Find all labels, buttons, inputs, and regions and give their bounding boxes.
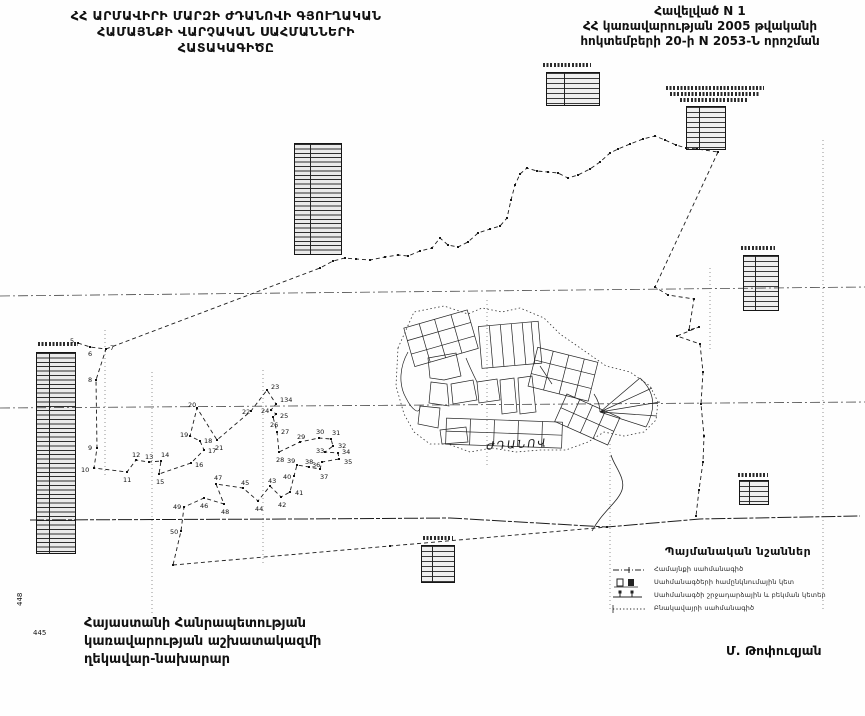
table-title-illegible	[423, 536, 453, 540]
community-boundary-lines	[30, 135, 860, 566]
legend-item-community-boundary: Համայնքի սահմանագիծ	[612, 562, 864, 575]
coordinate-table-right	[743, 255, 779, 311]
boundary-point	[93, 467, 95, 469]
boundary-point-number: 22	[242, 408, 250, 416]
boundary-point-number: 20	[188, 401, 196, 409]
boundary-point-number: 47	[214, 474, 222, 482]
boundary-point	[321, 461, 323, 463]
note-text-illegible	[666, 86, 764, 90]
coordinate-table-upper-left	[294, 143, 342, 255]
boundary-point	[148, 461, 150, 463]
boundary-point-number: 39	[287, 457, 295, 465]
boundary-point-number: 25	[280, 412, 288, 420]
boundary-point-number: 15	[156, 478, 164, 486]
boundary-point-number: 24	[261, 407, 269, 415]
boundary-point	[289, 491, 291, 493]
legend-title: Պայմանական նշաններ	[612, 545, 864, 558]
legend-item-turning-point: Սահմանագծի շրջադարձային և բեկման կետեր	[612, 588, 864, 601]
boundary-point-number: 14	[161, 451, 169, 459]
boundary-point-number: 19	[180, 431, 188, 439]
boundary-point	[135, 459, 137, 461]
boundary-point-number: 30	[316, 428, 324, 436]
coordinate-table-top-center	[546, 72, 600, 106]
boundary-point-number: 34	[342, 448, 350, 456]
boundary-point-number: 40	[283, 473, 291, 481]
boundary-point	[215, 483, 217, 485]
coordinate-table-bottom-center	[421, 545, 455, 583]
boundary-point	[89, 346, 91, 348]
signature-name: Մ. Թոփուզյան	[726, 643, 822, 658]
boundary-point	[126, 471, 128, 473]
table-title-illegible	[543, 63, 591, 67]
legend-item-coincident-point: Սահմանագծերի համընկնումային կետ	[612, 575, 864, 588]
boundary-point-number: 7	[110, 344, 114, 352]
boundary-point-number: 35	[344, 458, 352, 466]
boundary-point	[278, 451, 280, 453]
boundary-point	[337, 452, 339, 454]
boundary-point	[158, 473, 160, 475]
boundary-point	[196, 407, 198, 409]
boundary-point	[275, 413, 277, 415]
boundary-point	[338, 458, 340, 460]
boundary-point	[199, 440, 201, 442]
scanned-map-page: ՀՀ ԱՐՄԱՎԻՐԻ ՄԱՐԶԻ ԺԴԱՆՈՎԻ ԳՅՈՒՂԱԿԱՆ ՀԱՄԱ…	[0, 0, 865, 716]
coincident-point-icon	[612, 576, 648, 588]
margin-number-448: 448	[16, 593, 24, 606]
boundary-point-number: 9	[88, 444, 92, 452]
boundary-point	[280, 496, 282, 498]
boundary-point	[96, 447, 98, 449]
boundary-point-number: 37	[320, 473, 328, 481]
legend-item-label: Բնակավայրի սահմանագիծ	[654, 604, 754, 612]
boundary-point	[203, 449, 205, 451]
boundary-point-number: 11	[123, 476, 131, 484]
boundary-point-number: 41	[295, 489, 303, 497]
boundary-point-number: 42	[278, 501, 286, 509]
legend-item-settlement-boundary: Բնակավայրի սահմանագիծ	[612, 601, 864, 614]
margin-number-445: 445	[33, 629, 46, 637]
boundary-point-number: 23	[271, 383, 279, 391]
boundary-point	[250, 410, 252, 412]
coordinate-table-top-right	[686, 106, 726, 150]
boundary-point	[296, 464, 298, 466]
table-title-illegible	[738, 473, 768, 477]
boundary-point	[270, 409, 272, 411]
boundary-point-number: 31	[332, 429, 340, 437]
boundary-point	[275, 403, 277, 405]
boundary-point-number: 28	[276, 456, 284, 464]
boundary-point	[276, 431, 278, 433]
coordinate-table-far-left	[36, 352, 76, 554]
boundary-point	[332, 445, 334, 447]
boundary-point	[160, 460, 162, 462]
boundary-point	[203, 497, 205, 499]
boundary-point-number: 38	[305, 458, 313, 466]
turning-point-icon	[612, 589, 648, 601]
boundary-point	[266, 389, 268, 391]
boundary-point-number: 48	[221, 508, 229, 516]
boundary-point-number: 16	[195, 461, 203, 469]
boundary-point-number: 27	[281, 428, 289, 436]
boundary-point	[190, 462, 192, 464]
legend-item-label: Սահմանագծերի համընկնումային կետ	[654, 578, 794, 586]
graticule-lines	[0, 140, 865, 614]
issuer-line1: Հայաստանի Հանրապետության	[84, 615, 321, 633]
issuer-line2: կառավարության աշխատակազմի	[84, 633, 321, 651]
boundary-point	[216, 439, 218, 441]
boundary-point-labels: 5678910111213141516171819202122231342425…	[70, 337, 352, 536]
boundary-point-number: 46	[200, 502, 208, 510]
boundary-point-number: 45	[241, 479, 249, 487]
note-text-illegible	[680, 98, 748, 102]
issuer-caption: Հայաստանի Հանրապետության կառավարության ա…	[84, 615, 321, 669]
boundary-point	[272, 416, 274, 418]
boundary-point	[257, 500, 259, 502]
boundary-point-number: 44	[255, 505, 263, 513]
boundary-point-number: 49	[173, 503, 181, 511]
boundary-point	[330, 438, 332, 440]
legend-item-label: Սահմանագծի շրջադարձային և բեկման կետեր	[654, 591, 826, 599]
boundary-point-number: 10	[81, 466, 89, 474]
legend-item-label: Համայնքի սահմանագիծ	[654, 565, 743, 573]
legend: Պայմանական նշաններ Համայնքի սահմանագիծ Ս…	[612, 545, 864, 614]
boundary-point	[299, 441, 301, 443]
boundary-point	[319, 468, 321, 470]
boundary-point	[95, 379, 97, 381]
boundary-point	[105, 348, 107, 350]
table-title-illegible	[38, 342, 78, 346]
boundary-point-number: 29	[297, 433, 305, 441]
boundary-point-number: 26	[270, 421, 278, 429]
boundary-point-number: 21	[215, 444, 223, 452]
boundary-point-number: 43	[268, 477, 276, 485]
community-boundary-line-icon	[612, 563, 648, 575]
canal-line	[592, 455, 623, 531]
boundary-point	[242, 487, 244, 489]
boundary-point-number: 50	[170, 528, 178, 536]
boundary-point-number: 33	[316, 447, 324, 455]
boundary-point-number: 6	[88, 350, 92, 358]
boundary-point-number: 12	[132, 451, 140, 459]
settlement-parcel-cluster	[401, 310, 660, 448]
boundary-point	[269, 485, 271, 487]
boundary-point	[308, 466, 310, 468]
boundary-point-number: 18	[204, 437, 212, 445]
boundary-point	[183, 506, 185, 508]
note-text-illegible	[670, 92, 760, 96]
coordinate-table-lower-right	[739, 480, 769, 505]
boundary-point	[180, 530, 182, 532]
settlement-boundary-line-icon	[612, 602, 648, 614]
boundary-point	[324, 451, 326, 453]
boundary-point-number: 8	[88, 376, 92, 384]
boundary-point-number: 13	[145, 453, 153, 461]
boundary-point	[223, 503, 225, 505]
issuer-line3: ղեկավար-նախարար	[84, 651, 321, 669]
boundary-point-number: 134	[280, 396, 292, 404]
table-title-illegible	[741, 246, 775, 250]
boundary-point	[189, 435, 191, 437]
boundary-point	[293, 475, 295, 477]
boundary-point	[318, 437, 320, 439]
